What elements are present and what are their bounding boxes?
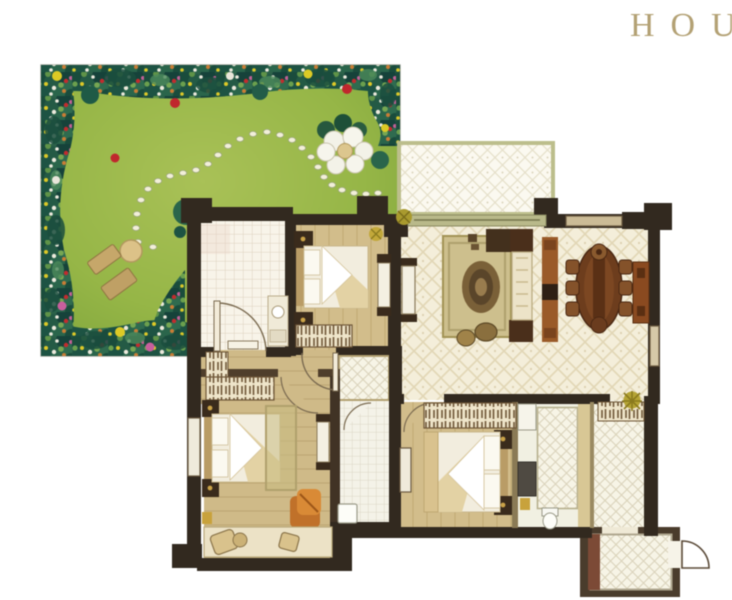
svg-text:HOU: HOU <box>630 7 732 44</box>
